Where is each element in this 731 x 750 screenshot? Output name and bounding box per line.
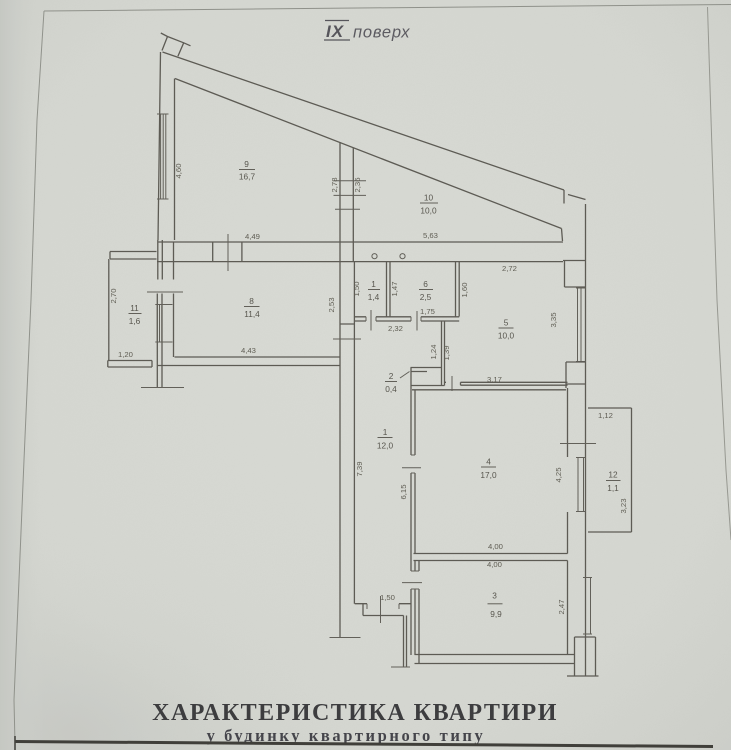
svg-text:0,4: 0,4	[385, 384, 397, 394]
svg-text:1,20: 1,20	[118, 350, 133, 359]
svg-text:4,00: 4,00	[487, 560, 502, 569]
svg-text:2,32: 2,32	[388, 324, 403, 333]
svg-text:11: 11	[130, 303, 139, 313]
svg-text:2,47: 2,47	[557, 600, 566, 615]
svg-text:4,49: 4,49	[245, 232, 260, 241]
svg-text:3: 3	[492, 591, 497, 601]
svg-text:11,4: 11,4	[244, 309, 260, 319]
svg-text:9: 9	[244, 159, 249, 169]
svg-text:4,00: 4,00	[488, 542, 503, 551]
svg-text:1,75: 1,75	[420, 307, 435, 316]
svg-text:1,4: 1,4	[368, 292, 380, 302]
svg-text:8: 8	[249, 296, 254, 306]
svg-text:2: 2	[389, 371, 394, 381]
svg-text:1,39: 1,39	[442, 346, 451, 361]
svg-text:3,17: 3,17	[487, 375, 502, 384]
svg-text:10,0: 10,0	[420, 206, 437, 216]
svg-text:4: 4	[486, 457, 491, 467]
svg-text:10,0: 10,0	[498, 331, 515, 341]
svg-text:1,1: 1,1	[607, 483, 619, 493]
svg-text:1: 1	[371, 279, 376, 289]
svg-text:1: 1	[383, 427, 388, 437]
svg-text:1,24: 1,24	[429, 344, 438, 360]
svg-text:1,47: 1,47	[390, 282, 399, 297]
svg-text:16,7: 16,7	[239, 172, 256, 182]
svg-text:поверх: поверх	[353, 24, 410, 42]
svg-text:10: 10	[424, 193, 434, 203]
svg-text:12,0: 12,0	[377, 441, 394, 451]
svg-text:1,50: 1,50	[352, 282, 361, 297]
svg-text:ХАРАКТЕРИСТИКА КВАРТИРИ: ХАРАКТЕРИСТИКА КВАРТИРИ	[152, 700, 558, 726]
svg-text:17,0: 17,0	[480, 470, 497, 480]
svg-text:4,25: 4,25	[554, 468, 563, 483]
svg-text:1,50: 1,50	[380, 593, 395, 602]
svg-text:3,23: 3,23	[619, 499, 628, 514]
svg-text:9,9: 9,9	[490, 609, 502, 619]
svg-text:2,53: 2,53	[327, 298, 336, 313]
svg-text:1,60: 1,60	[460, 283, 469, 298]
svg-text:2,70: 2,70	[109, 289, 118, 304]
svg-text:IX: IX	[326, 22, 345, 41]
svg-text:12: 12	[608, 470, 618, 480]
svg-text:6: 6	[423, 279, 428, 289]
svg-text:7,39: 7,39	[355, 462, 364, 477]
svg-text:1,12: 1,12	[598, 411, 613, 420]
svg-text:1,6: 1,6	[129, 316, 141, 326]
svg-text:5: 5	[504, 318, 509, 328]
svg-text:2,78: 2,78	[330, 178, 339, 193]
svg-text:5,63: 5,63	[423, 231, 438, 240]
svg-text:3,35: 3,35	[549, 313, 558, 328]
svg-text:2,72: 2,72	[502, 264, 517, 273]
svg-text:2,5: 2,5	[420, 292, 432, 302]
svg-text:4,43: 4,43	[241, 346, 256, 355]
svg-text:6,15: 6,15	[399, 485, 408, 500]
svg-text:4,60: 4,60	[174, 164, 183, 179]
svg-text:2,36: 2,36	[353, 178, 362, 193]
